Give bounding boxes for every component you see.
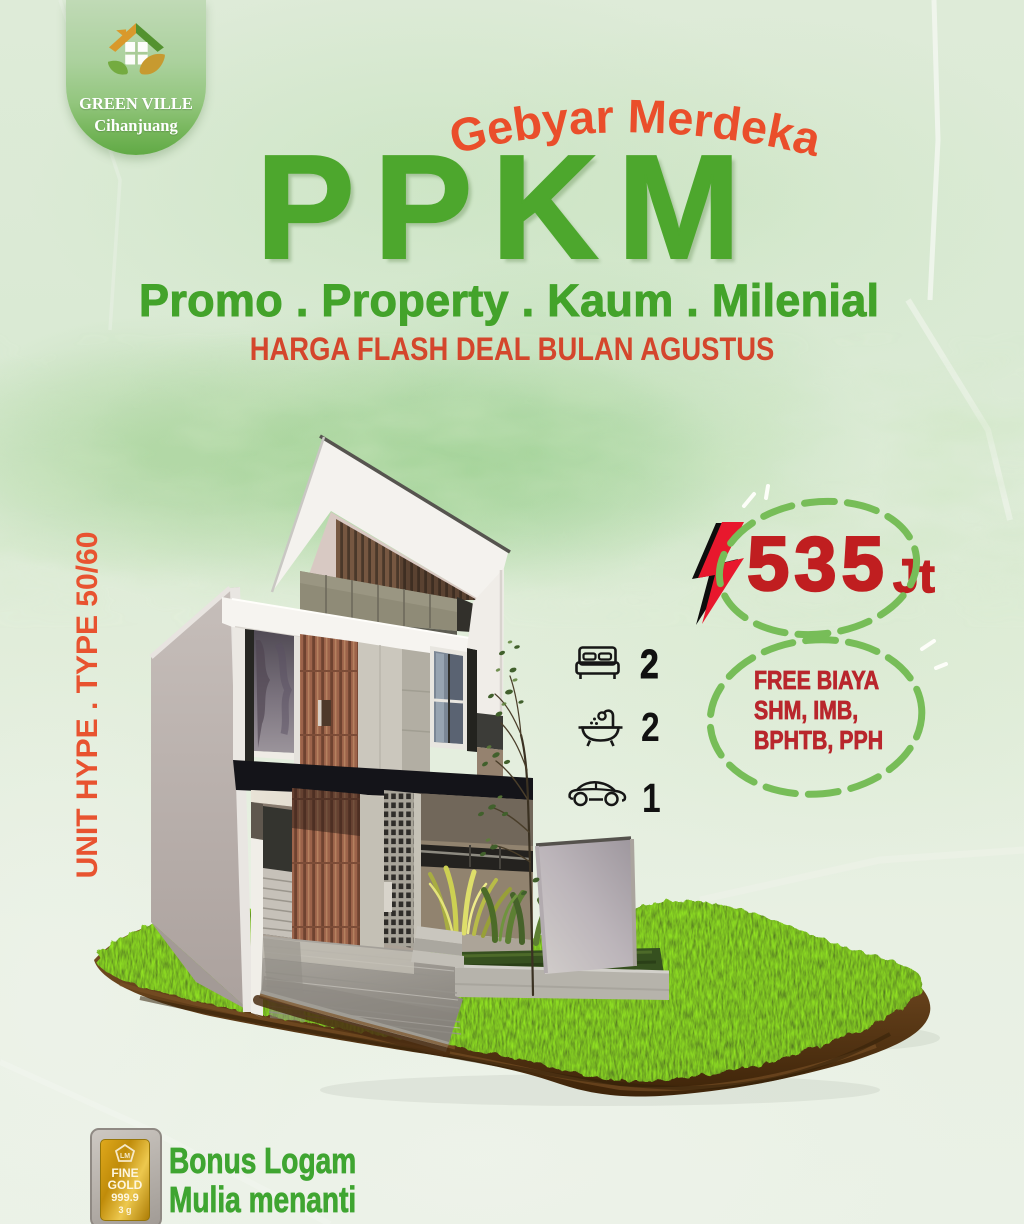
svg-text:999.9: 999.9 — [111, 1192, 139, 1204]
svg-text:GOLD: GOLD — [108, 1178, 143, 1192]
svg-text:3 g: 3 g — [118, 1205, 131, 1215]
svg-text:LM: LM — [120, 1153, 130, 1160]
